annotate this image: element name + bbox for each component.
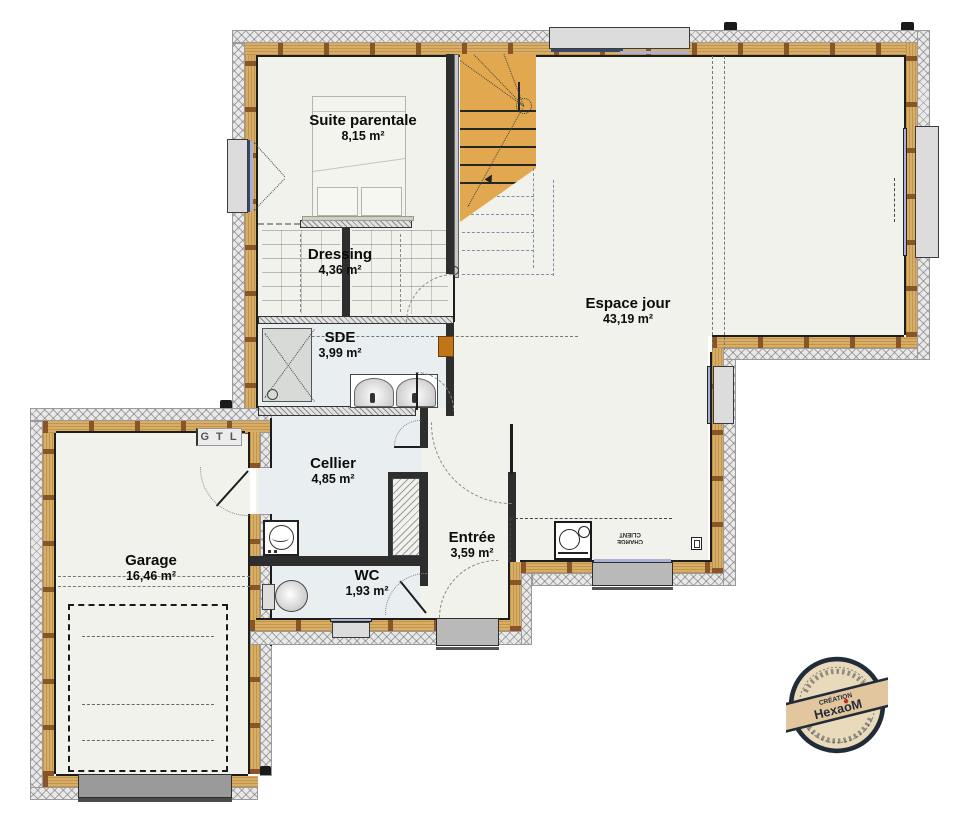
kitchen-counter-dash [510,518,672,519]
stair-step-dashed [471,214,534,215]
room-label-entree: Entrée 3,59 m² [421,530,523,560]
window-glass [620,51,689,54]
wall-suite-dressing [300,220,412,228]
note-line: CHARGE [598,537,662,544]
wall [256,55,258,418]
garage-door-edge [78,798,232,802]
wall [43,433,54,776]
appliance-circle [578,526,590,538]
door-step [436,647,499,650]
hexaom-stamp-logo: CRÉATION HexaoM [786,654,888,756]
window-opening-dash [894,178,895,222]
faucet [370,393,375,403]
stair-void-dash [553,180,554,276]
kitchen-appliance [554,521,592,560]
wall [521,573,532,645]
rear-door [592,562,673,586]
room-area: 4,85 m² [272,472,394,486]
panel-icon [691,537,702,550]
bed-fold [313,158,405,172]
wall [54,433,56,774]
door-step [592,587,673,590]
washing-machine-knob [268,550,271,553]
room-name: Entrée [421,530,523,546]
bed-pillow [361,187,402,216]
room-label-garage: Garage 16,46 m² [88,553,214,583]
door-knob [450,266,459,275]
window-glass [707,366,711,424]
vent-mark [220,400,232,408]
stair-step-dashed [462,232,534,233]
room-label-dressing: Dressing 4,36 m² [285,247,395,277]
gtl-box: G T L [196,428,242,446]
stair-step-dashed [462,250,534,251]
bed-pillow [317,187,358,216]
toilet-tank [262,584,275,610]
stair-void-dash [533,168,534,268]
panel-detail [694,540,700,548]
wardrobe-rail [400,234,401,312]
room-name: Cellier [272,456,394,472]
garage-dash [58,586,250,587]
bed-headboard [302,216,414,221]
wall-cellier-wc [250,556,428,566]
stair-winder-line [474,54,525,106]
note-line: CLIENT [598,530,662,537]
stair-stringer [454,54,459,278]
wall [712,337,917,348]
parking-dash [82,704,214,705]
beam-dash [724,56,725,350]
wall [232,43,245,434]
post [438,336,454,357]
room-name: Espace jour [558,296,698,312]
window-sill [915,126,939,258]
stair-step [460,164,536,166]
room-area: 1,93 m² [312,584,422,598]
stair-step [460,146,536,148]
floor-plan: Suite parentale 8,15 m² Dressing 4,36 m²… [0,0,960,832]
stair-step-dashed [497,196,534,197]
parking-dash [82,740,214,741]
appliance-circle [559,529,580,550]
window-sill [549,27,690,49]
wall [30,421,43,800]
washing-machine-knob [274,550,277,553]
vent-mark [724,22,737,30]
charge-client-note: CHARGE CLIENT [598,526,662,544]
wall [723,348,930,360]
stair-newel-circle [516,98,532,114]
room-label-sde: SDE 3,99 m² [285,330,395,360]
window-sill [713,366,734,424]
wall [250,432,260,468]
room-label-suite-parentale: Suite parentale 8,15 m² [278,113,448,143]
wall-cellier-entree [420,408,428,448]
toilet-bowl [275,580,308,612]
room-area: 3,99 m² [285,346,395,360]
room-area: 4,36 m² [285,263,395,277]
window-glass [551,49,623,52]
wall [244,55,906,57]
beam-dash [712,56,713,350]
opening-suite-dressing [258,223,300,225]
window-glass [250,141,253,211]
garage-door [78,774,232,798]
wall [30,408,272,421]
parking-dash [82,636,214,637]
room-name: Suite parentale [278,113,448,129]
room-area: 8,15 m² [278,129,448,143]
shower-drain [267,389,278,400]
window-sill [227,139,248,213]
stair-void-dash [462,274,554,275]
room-name: Garage [88,553,214,569]
stair-step [460,128,536,130]
vent-mark [901,22,914,30]
room-area: 43,19 m² [558,312,698,326]
washing-machine-wave [272,534,289,542]
room-label-wc: WC 1,93 m² [312,568,422,598]
parking-space [68,604,228,772]
room-label-cellier: Cellier 4,85 m² [272,456,394,486]
closet-hatch [392,478,420,556]
wall [510,562,521,631]
room-name: WC [312,568,422,584]
appliance-line [558,552,588,554]
washing-machine [263,520,299,556]
room-label-espace-jour: Espace jour 43,19 m² [558,296,698,326]
room-name: SDE [285,330,395,346]
room-area: 3,59 m² [421,546,523,560]
wall [245,55,256,434]
room-name: Dressing [285,247,395,263]
window-glass [903,128,907,256]
room-area: 16,46 m² [88,569,214,583]
vent-mark [260,766,271,775]
window-sill [332,622,370,638]
entry-door [436,618,499,646]
